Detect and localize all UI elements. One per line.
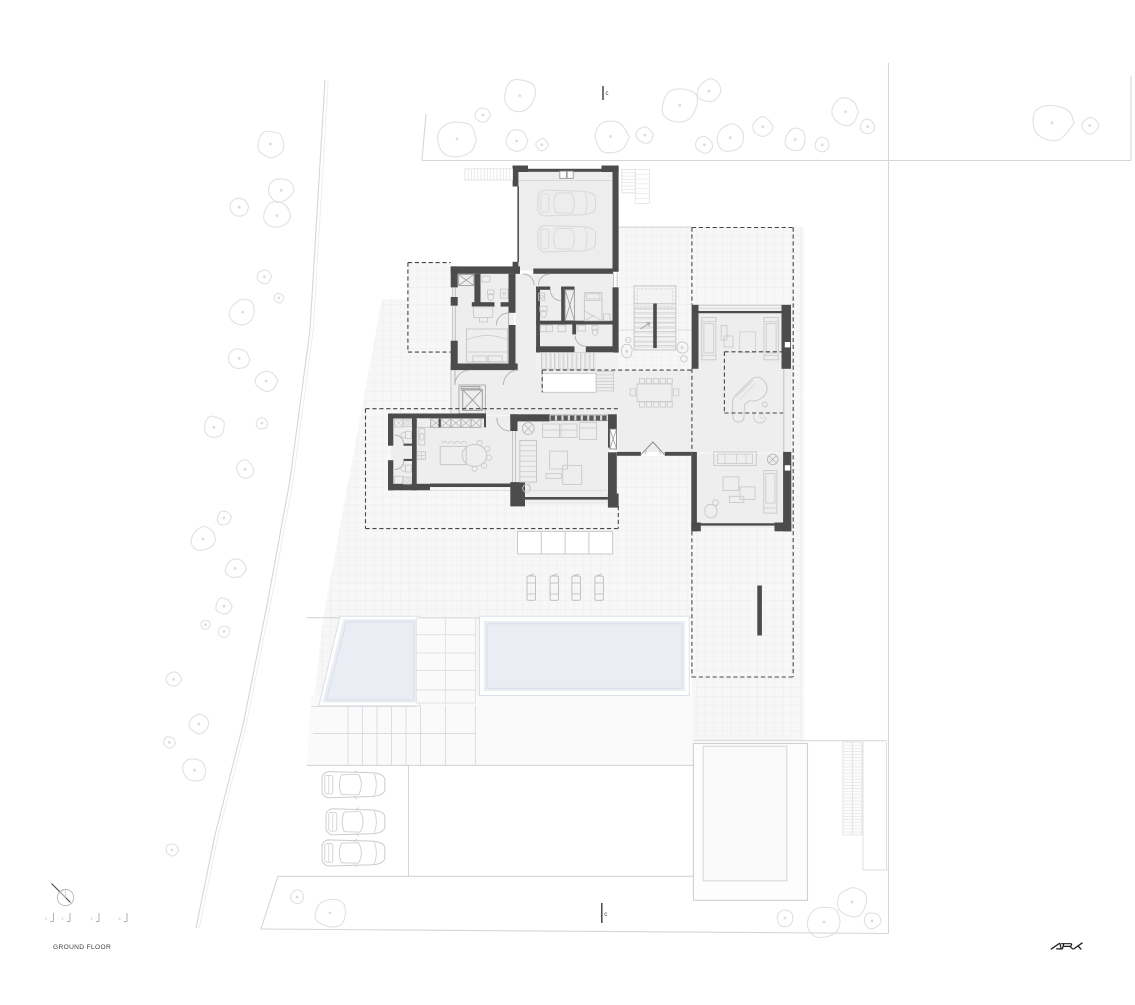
svg-text:c: c bbox=[604, 912, 607, 918]
svg-text:3: 3 bbox=[91, 917, 93, 921]
svg-text:5: 5 bbox=[119, 917, 121, 921]
svg-text:1: 1 bbox=[62, 917, 64, 921]
svg-text:GROUND FLOOR: GROUND FLOOR bbox=[53, 944, 111, 951]
svg-text:c: c bbox=[606, 91, 609, 97]
svg-text:0: 0 bbox=[45, 917, 47, 921]
